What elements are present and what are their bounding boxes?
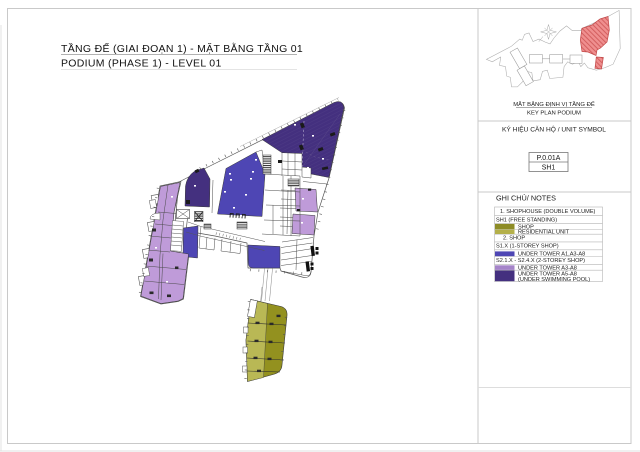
svg-text:SH1: SH1 <box>542 164 556 171</box>
svg-text:P.0.01A: P.0.01A <box>537 155 561 162</box>
svg-text:MẰT BẬNG ĐỊNH VỊ TẦNG ĐẾ: MẰT BẬNG ĐỊNH VỊ TẦNG ĐẾ <box>513 100 595 108</box>
svg-text:GHI CHÚ/ NOTES: GHI CHÚ/ NOTES <box>496 194 556 203</box>
svg-text:S1.X (1-STOREY SHOP): S1.X (1-STOREY SHOP) <box>496 243 559 249</box>
svg-text:PODIUM (PHASE 1) - LEVEL 01: PODIUM (PHASE 1) - LEVEL 01 <box>61 58 222 70</box>
svg-text:(UNDER SWIMMING POOL): (UNDER SWIMMING POOL) <box>518 277 590 283</box>
svg-text:TẦNG ĐẾ (GIAI ĐOẠN 1) - MẶT BẰ: TẦNG ĐẾ (GIAI ĐOẠN 1) - MẶT BẰNG TẦNG 01 <box>61 42 303 55</box>
svg-text:1. SHOPHOUSE (DOUBLE VOLUME): 1. SHOPHOUSE (DOUBLE VOLUME) <box>500 209 596 215</box>
svg-text:RESIDENTIAL UNIT: RESIDENTIAL UNIT <box>518 229 570 235</box>
svg-text:S2.1.X - S2.4.X (2-STOREY SHOP: S2.1.X - S2.4.X (2-STOREY SHOP) <box>496 258 585 264</box>
svg-text:KÝ HIỆU CĂN HỘ / UNIT SYMBOL: KÝ HIỆU CĂN HỘ / UNIT SYMBOL <box>502 125 606 134</box>
svg-text:KEY PLAN PODIUM: KEY PLAN PODIUM <box>527 111 581 117</box>
svg-text:UNDER TOWER A3-A8: UNDER TOWER A3-A8 <box>518 265 577 271</box>
svg-text:SH1 (FREE STANDING): SH1 (FREE STANDING) <box>496 217 557 223</box>
svg-text:UNDER TOWER A1,A3-A8: UNDER TOWER A1,A3-A8 <box>518 252 585 258</box>
svg-text:2. SHOP: 2. SHOP <box>503 236 525 242</box>
